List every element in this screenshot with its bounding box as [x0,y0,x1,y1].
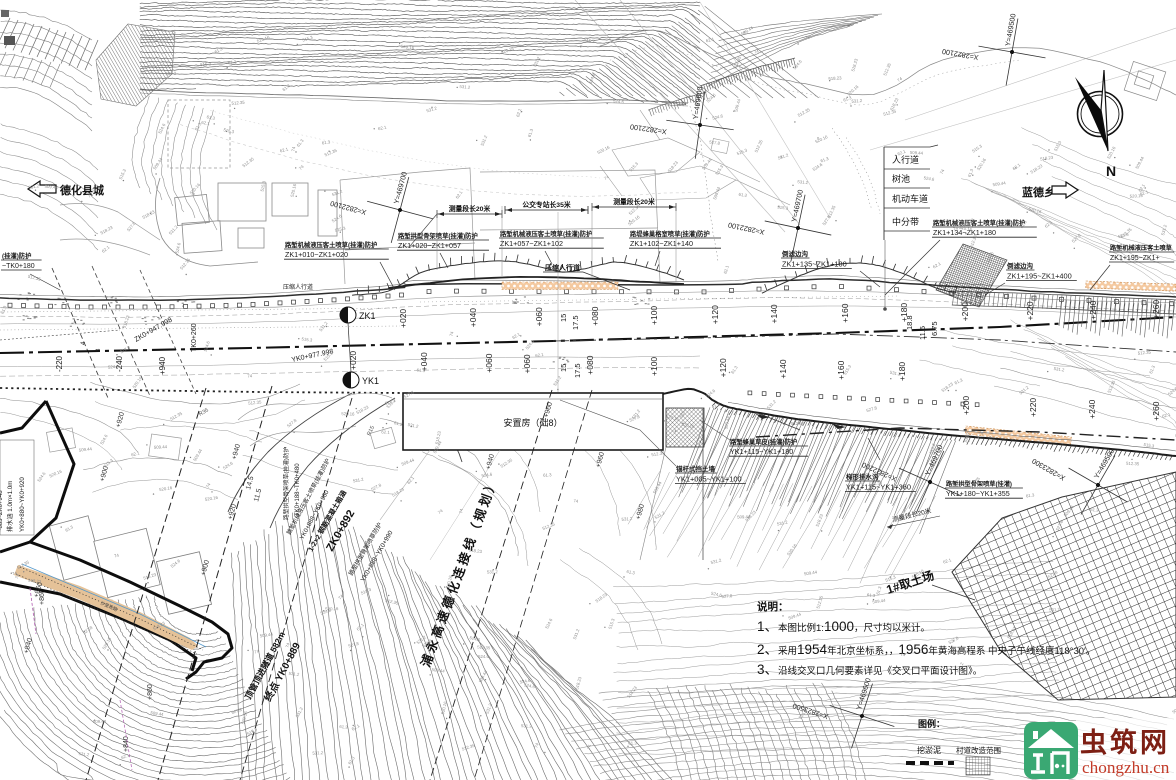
svg-text:531.2: 531.2 [621,516,633,522]
svg-text:路堑拱型骨架喷草(挂灌)防护: 路堑拱型骨架喷草(挂灌)防护 [282,446,290,520]
svg-text:524.6: 524.6 [478,654,489,659]
svg-text:测量段长20米: 测量段长20米 [449,204,491,213]
svg-text:压缩人行道: 压缩人行道 [545,263,580,272]
svg-text:ZK1+135~ZK1+180: ZK1+135~ZK1+180 [782,259,847,268]
svg-text:N: N [1106,163,1116,179]
svg-text:+220: +220 [1025,301,1035,320]
svg-text:509.44: 509.44 [1046,649,1060,655]
svg-text:527.8: 527.8 [721,593,733,599]
svg-text:(挂灌)防护: (挂灌)防护 [2,251,31,260]
svg-text:+100: +100 [649,306,659,325]
svg-text:YK1+005~YK1+100: YK1+005~YK1+100 [676,474,742,483]
svg-text:ZK1+102~ZK1+140: ZK1+102~ZK1+140 [630,239,693,248]
svg-text:虫筑网: 虫筑网 [1080,727,1170,758]
svg-text:测量段长20米: 测量段长20米 [613,197,655,206]
svg-text:路堑机械液压客土喷草(挂灌)防护: 路堑机械液压客土喷草(挂灌)防护 [933,218,1025,227]
svg-text:倒滤边沟: 倒滤边沟 [1006,261,1034,270]
svg-text:+160: +160 [840,303,850,322]
svg-text:ZK1: ZK1 [359,311,376,321]
svg-text:YK1: YK1 [362,376,379,386]
svg-text:11.5: 11.5 [918,326,927,340]
svg-text:机动车道: 机动车道 [892,193,928,204]
svg-text:路堑蜂巢草皮(挂灌)防护: 路堑蜂巢草皮(挂灌)防护 [730,437,797,446]
svg-text:YK0+880~YK0+920: YK0+880~YK0+920 [19,477,26,532]
svg-text:+060: +060 [522,354,532,373]
svg-text:路堑拱型骨架喷草(挂灌)防护: 路堑拱型骨架喷草(挂灌)防护 [398,231,478,240]
svg-text:ZK1+195~ZK1+: ZK1+195~ZK1+ [1110,255,1160,262]
svg-text:+260: +260 [1151,300,1161,319]
svg-text:509.44: 509.44 [737,514,751,519]
svg-text:61.3: 61.3 [628,741,637,746]
svg-text:-220: -220 [55,355,64,372]
svg-text:61.3: 61.3 [1090,507,1099,513]
svg-text:TK0+188~TK0+480: TK0+188~TK0+480 [295,463,301,516]
svg-text:518.23: 518.23 [828,75,842,81]
svg-text:+020: +020 [348,351,358,370]
svg-text:509.44: 509.44 [910,150,924,156]
svg-text:17.5: 17.5 [571,315,580,330]
svg-text:+940: +940 [158,356,167,375]
svg-text:+060: +060 [534,307,544,326]
svg-text:+140: +140 [769,304,779,323]
svg-text:+220: +220 [1028,398,1038,417]
svg-text:+080: +080 [590,306,600,325]
svg-text:520.16: 520.16 [325,606,339,611]
svg-text:村道改造范围: 村道改造范围 [956,745,1001,755]
svg-text:ZK1+195~ZK1+400: ZK1+195~ZK1+400 [1007,271,1072,280]
svg-text:排水涵 1.0m×1.0m: 排水涵 1.0m×1.0m [6,481,14,532]
svg-text:挖淤泥: 挖淤泥 [917,745,941,755]
svg-text:路堑机械液压客土喷草(挂灌)防护: 路堑机械液压客土喷草(挂灌)防护 [500,229,592,238]
svg-text:531.2: 531.2 [797,179,809,185]
svg-text:+260: +260 [1151,401,1161,420]
svg-text:531.2: 531.2 [165,71,177,77]
svg-text:531.2: 531.2 [312,750,324,755]
svg-text:531.2: 531.2 [459,84,471,90]
svg-text:图例：: 图例： [918,718,945,729]
svg-text:509.44: 509.44 [154,444,168,450]
svg-text:安置房（础8）: 安置房（础8） [503,417,562,428]
svg-text:18.8: 18.8 [905,315,914,330]
svg-text:路堑机械液压客土喷草(挂灌)防护: 路堑机械液压客土喷草(挂灌)防护 [285,240,377,249]
svg-text:+840: +840 [123,736,130,752]
svg-text:17.5: 17.5 [573,363,582,378]
svg-text:ZK1+057~ZK1+102: ZK1+057~ZK1+102 [500,239,563,248]
svg-text:+140: +140 [778,359,788,378]
svg-text:+020: +020 [398,309,408,328]
svg-text:TK0+260: TK0+260 [191,323,198,352]
svg-text:61.3: 61.3 [543,472,552,478]
svg-text:62.1: 62.1 [381,429,390,435]
svg-text:512.35: 512.35 [1126,461,1140,467]
svg-text:512.35: 512.35 [791,421,805,426]
svg-text:531.2: 531.2 [521,723,533,729]
svg-text:~TK0+180: ~TK0+180 [2,263,35,270]
svg-text:15: 15 [559,314,568,322]
svg-text:倒滤边沟: 倒滤边沟 [781,249,809,258]
svg-text:+060: +060 [484,353,494,372]
svg-text:ZK1+020~ZK1+057: ZK1+020~ZK1+057 [398,241,461,250]
svg-text:531.2: 531.2 [487,569,499,574]
svg-text:531.2: 531.2 [1049,607,1061,613]
svg-text:说明：: 说明： [757,600,789,613]
svg-text:+240: +240 [1088,300,1098,319]
svg-text:+200: +200 [961,396,971,415]
svg-text:531.2: 531.2 [851,98,863,104]
svg-text:520.16: 520.16 [341,411,355,417]
svg-text:+240: +240 [1087,399,1097,418]
svg-text:ZK1+010~ZK1+020: ZK1+010~ZK1+020 [285,250,348,259]
svg-text:蓝德乡: 蓝德乡 [1022,185,1055,199]
svg-text:树池: 树池 [892,173,910,184]
svg-text:~885~ZK0+948: ~885~ZK0+948 [0,490,4,532]
svg-text:chongzhu.cn: chongzhu.cn [1082,758,1170,777]
svg-text:61.3: 61.3 [416,367,425,373]
svg-text:515.3: 515.3 [200,61,212,67]
svg-text:+120: +120 [710,305,720,324]
svg-text:+120: +120 [718,358,728,377]
svg-text:YK1+115~YK1+180: YK1+115~YK1+180 [730,447,793,456]
svg-text:锚杆式挡土墙: 锚杆式挡土墙 [676,464,716,473]
svg-text:公交专站长35米: 公交专站长35米 [522,200,571,209]
svg-text:+860: +860 [147,684,154,700]
svg-text:509.44: 509.44 [93,719,107,724]
svg-text:6.75: 6.75 [930,321,939,336]
svg-text:61.3: 61.3 [339,724,348,730]
svg-text:+100: +100 [649,357,659,376]
svg-text:压缩人行道: 压缩人行道 [283,283,313,291]
svg-text:YK1+180~YK1+355: YK1+180~YK1+355 [946,489,1010,498]
svg-text:+200: +200 [960,302,970,321]
svg-text:中分带: 中分带 [892,216,919,227]
svg-text:+080: +080 [585,355,595,374]
svg-text:15: 15 [559,364,568,372]
svg-text:524.6: 524.6 [108,364,120,370]
svg-text:路堑机械液压客土喷草: 路堑机械液压客土喷草 [1110,244,1172,252]
svg-text:+040: +040 [468,308,478,327]
